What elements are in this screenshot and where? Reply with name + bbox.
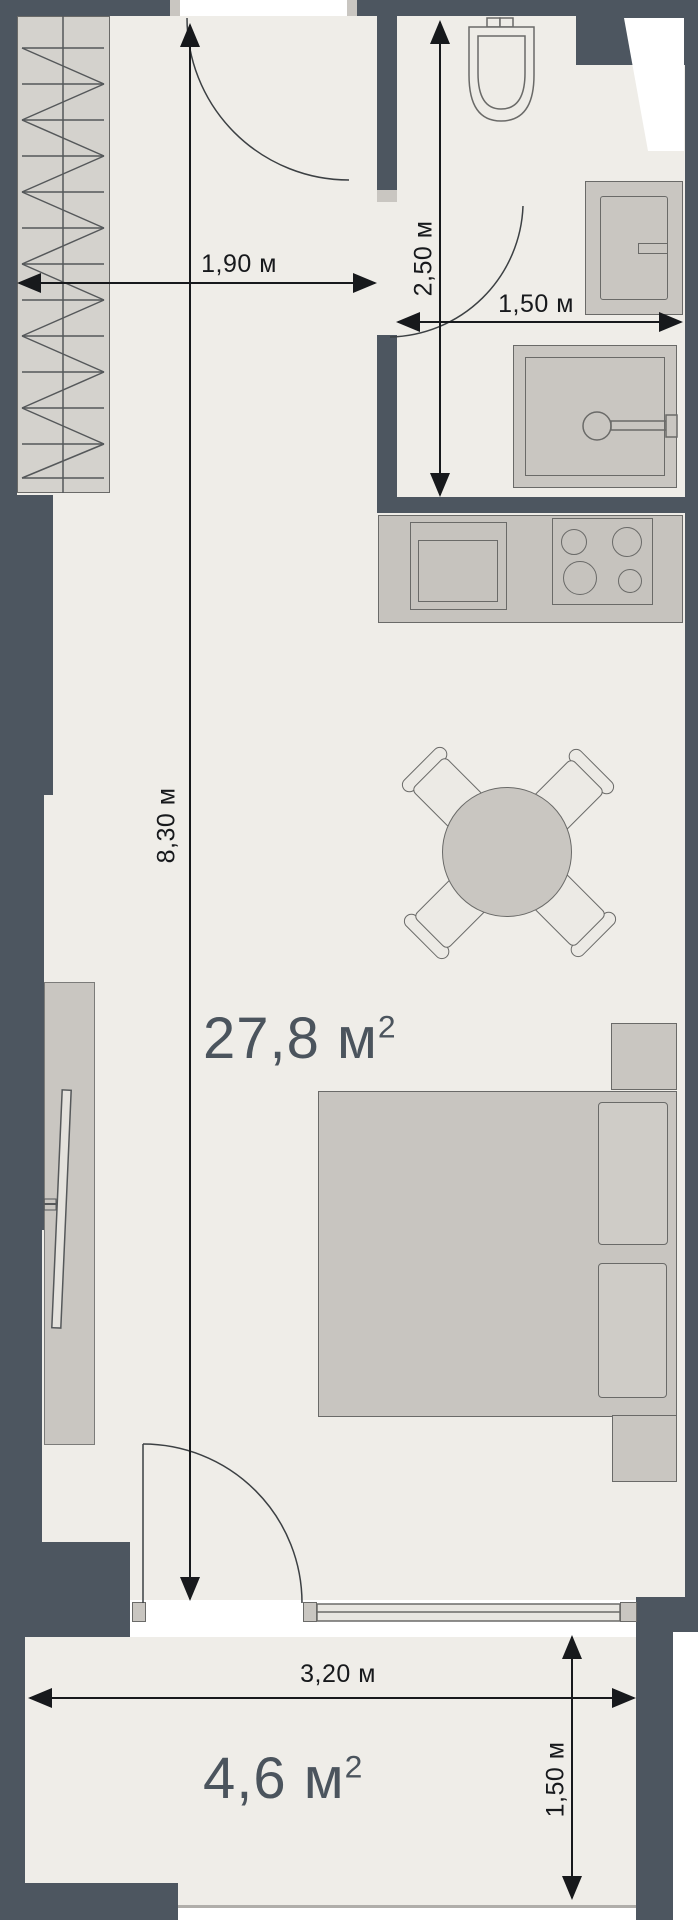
stove-burner-2	[612, 527, 642, 557]
dim-label-hallway-width: 1,90 м	[139, 250, 339, 279]
tv-console	[44, 982, 95, 1445]
wall-right-step	[636, 1597, 698, 1632]
balcony-area-label: 4,6 м2	[203, 1745, 363, 1812]
dim-label-bathroom-length: 2,50 м	[410, 159, 439, 359]
wall-left-5	[0, 1542, 130, 1637]
wall-right-main	[685, 16, 698, 1602]
floor-plan: 1,90 м 2,50 м 1,50 м 8,30 м 3,20 м 1,50 …	[0, 0, 698, 1920]
shower-tray-inner	[525, 357, 665, 476]
bed-pillow-bottom	[598, 1263, 667, 1398]
bathroom-door-jamb	[377, 190, 397, 202]
entry-door-jamb-left	[170, 0, 180, 16]
wall-kitchen-band	[377, 497, 685, 513]
wardrobe	[17, 16, 110, 493]
balcony-area-sup: 2	[345, 1749, 364, 1785]
wall-balcony-left	[0, 1637, 25, 1920]
dim-label-balcony-width: 3,20 м	[238, 1660, 438, 1689]
wall-left-2	[0, 495, 53, 795]
balcony-door-jamb-left	[132, 1602, 146, 1622]
bed-pillow-top	[598, 1102, 668, 1245]
wall-bathroom-lower	[377, 335, 397, 513]
balcony-door-jamb-mid	[303, 1602, 317, 1622]
nightstand	[611, 1023, 677, 1090]
main-room-area-label: 27,8 м2	[203, 1005, 397, 1072]
wall-left-1	[0, 0, 17, 495]
main-room-area-value: 27,8 м	[203, 1006, 378, 1071]
balcony-glazing	[317, 1604, 620, 1621]
washing-machine-handle	[638, 243, 668, 254]
stove-burner-4	[618, 569, 642, 593]
dim-label-bathroom-width: 1,50 м	[436, 290, 636, 319]
balcony-area-value: 4,6 м	[203, 1746, 345, 1811]
kitchen-sink-basin	[418, 540, 498, 602]
wall-top-left	[0, 0, 180, 16]
balcony-window-jamb-right	[620, 1602, 637, 1622]
dim-label-balcony-depth: 1,50 м	[542, 1680, 571, 1880]
dining-table	[442, 787, 572, 917]
wall-balcony-right	[636, 1632, 673, 1920]
wall-left-3	[0, 795, 44, 1230]
main-room-area-sup: 2	[378, 1009, 397, 1045]
wall-balcony-bottom	[0, 1883, 178, 1920]
entry-door-jamb-right	[347, 0, 357, 16]
wall-left-4	[0, 1230, 42, 1542]
stove-burner-1	[561, 529, 587, 555]
bedside-bench	[612, 1415, 677, 1482]
stove-burner-3	[563, 561, 597, 595]
dim-label-room-length: 8,30 м	[153, 726, 182, 926]
wall-bathroom-upper	[377, 16, 397, 190]
